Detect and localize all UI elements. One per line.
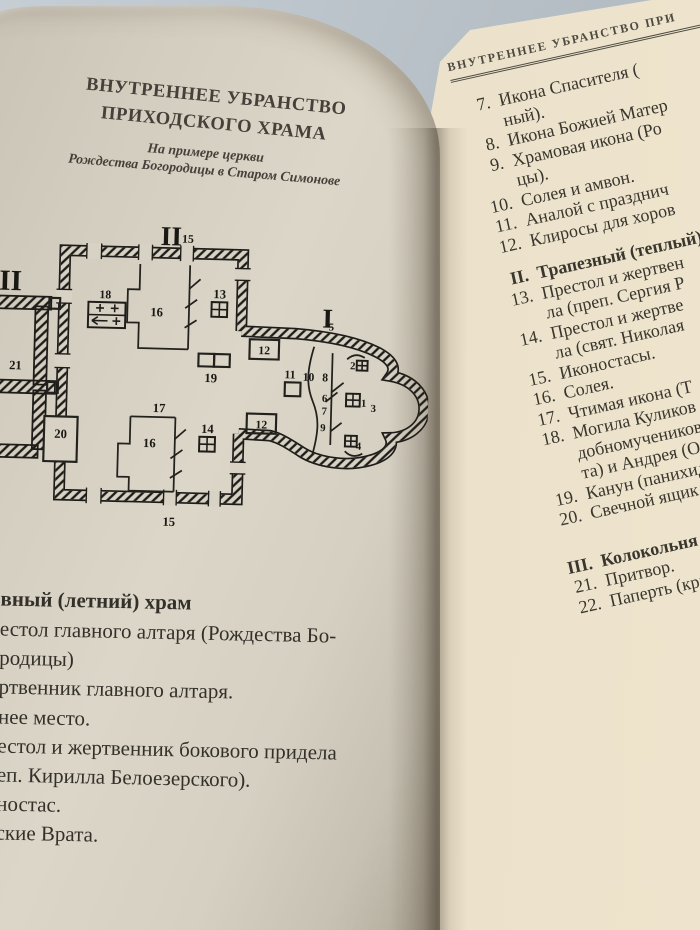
plan-label-12: 12 [258,344,270,357]
plan-label-7: 7 [321,405,327,417]
open-book-photo: ВНУТРЕННЕЕ УБРАНСТВО ПРИ 7.Икона Спасите… [0,0,700,930]
right-page-list: 7.Икона Спасителя (ный).8.Икона Божией М… [455,27,700,620]
plan-label-17: 17 [153,401,167,415]
plan-label-13: 13 [213,287,226,301]
floor-plan-diagram: IIIIII1515181613121219511108267913421201… [0,201,433,535]
plan-label-15: 15 [162,515,175,529]
plan-label-3: 3 [370,403,376,415]
plan-label-2: 2 [350,360,356,372]
plan-label-1: 1 [361,398,367,410]
plan-label-21: 21 [9,358,22,372]
plan-label-10: 10 [303,371,315,384]
plan-label-4: 4 [356,441,362,453]
plan-label-19: 19 [204,371,217,385]
plan-label-11: 11 [284,368,296,381]
plan-label-18: 18 [99,288,111,301]
plan-label-5: 5 [329,322,335,334]
plan-label-III: III [0,264,22,297]
plan-label-20: 20 [54,427,67,441]
plan-label-9: 9 [320,422,326,434]
plan-label-15: 15 [182,233,194,246]
plan-label-12: 12 [255,418,267,431]
left-page-list: естол главного алтаря (Рождества Бо-роди… [0,615,430,858]
plan-label-16: 16 [150,305,163,319]
plan-label-II: II [160,221,182,252]
plan-wall-gaps [51,242,251,507]
plan-label-8: 8 [322,371,328,384]
tomb-symbol [88,302,126,328]
left-page: ВНУТРЕННЕЕ УБРАНСТВО ПРИХОДСКОГО ХРАМА Н… [0,6,440,930]
plan-label-14: 14 [201,422,215,436]
plan-fixtures [43,298,302,468]
left-page-list-block: вный (летний) храм естол главного алтаря… [0,586,431,858]
right-page-content: ВНУТРЕННЕЕ УБРАНСТВО ПРИ 7.Икона Спасите… [438,0,700,853]
plan-label-16: 16 [143,436,156,450]
plan-label-6: 6 [322,393,328,405]
item-number: 18. [528,425,575,492]
